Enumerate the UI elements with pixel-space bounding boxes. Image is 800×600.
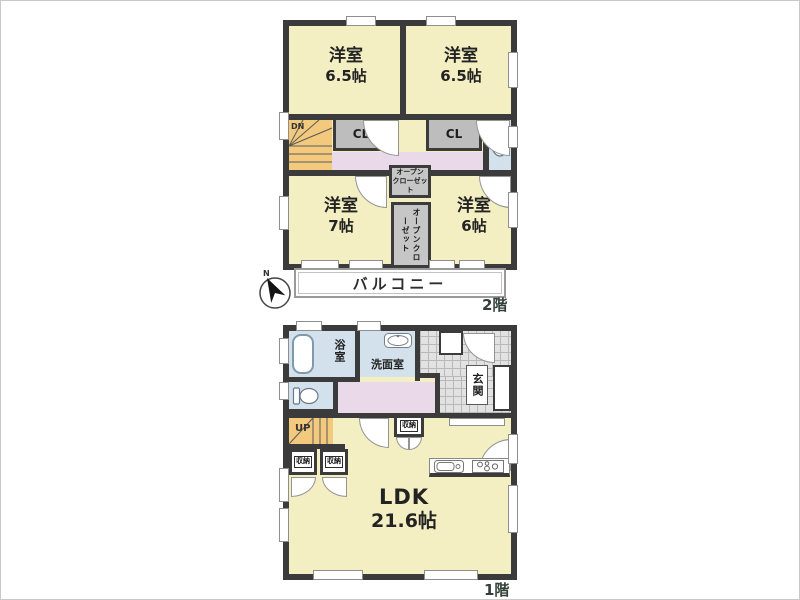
washroom-name: 洗面室 xyxy=(371,358,404,372)
sink-icon xyxy=(384,333,412,348)
closet-cl-right-label: CL xyxy=(446,127,462,141)
stairs-down-area: DN xyxy=(289,120,332,170)
bathtub-icon xyxy=(292,334,314,374)
storage-right: 収納 xyxy=(320,449,348,475)
floor1-plan: 浴室 洗面室 玄関 xyxy=(283,325,517,580)
washroom-label: 洗面室 xyxy=(360,357,415,373)
open-closet-lower: オープンクローゼット xyxy=(391,202,431,268)
ldk-label: LDK 21.6帖 xyxy=(344,481,464,537)
entrance-step xyxy=(449,418,505,426)
room-nw-size: 6.5帖 xyxy=(325,67,367,86)
kitchen-counter xyxy=(429,458,510,477)
window-icon xyxy=(279,468,289,502)
window-icon xyxy=(424,570,478,580)
room-sw-name: 洋室 xyxy=(324,196,358,217)
window-icon xyxy=(279,196,289,230)
window-icon xyxy=(508,192,518,228)
window-icon xyxy=(313,570,363,580)
floorplan-canvas: DN CL CL オープン クローゼット オープンクローゼット 洋室 6.5帖 xyxy=(0,0,800,600)
balcony-label: バルコニー xyxy=(353,273,448,294)
storage-left: 収納 xyxy=(289,449,317,475)
window-icon xyxy=(508,485,518,533)
stairs-up-label: UP xyxy=(295,423,310,434)
room-se-name: 洋室 xyxy=(457,196,491,217)
door-arc xyxy=(359,418,389,448)
compass-n-label: N xyxy=(263,269,270,278)
bath-label: 浴室 xyxy=(331,339,347,363)
ldk-size: 21.6帖 xyxy=(371,510,437,534)
storage-right-label: 収納 xyxy=(325,456,343,467)
entrance-closet xyxy=(439,331,463,355)
open-closet-lower-label: オープンクローゼット xyxy=(400,206,422,264)
window-icon xyxy=(426,16,456,26)
floor2-label: 2階 xyxy=(482,294,507,315)
room-se-size: 6帖 xyxy=(461,217,486,236)
window-icon xyxy=(279,112,289,140)
entrance-label: 玄関 xyxy=(469,373,485,397)
open-closet-upper: オープン クローゼット xyxy=(389,165,431,198)
window-icon xyxy=(346,16,376,26)
ldk-name: LDK xyxy=(379,484,429,510)
room-nw-label: 洋室 6.5帖 xyxy=(306,41,386,91)
wall xyxy=(400,26,406,120)
storage-mid: 収納 xyxy=(394,415,424,437)
window-icon xyxy=(508,52,518,88)
closet-cl-right: CL xyxy=(426,117,482,151)
compass-icon: N xyxy=(250,266,296,312)
window-icon xyxy=(508,434,518,464)
stairs-down-label: DN xyxy=(291,122,304,131)
window-icon xyxy=(279,508,289,542)
entrance-label-box: 玄関 xyxy=(466,365,488,405)
window-icon xyxy=(296,321,322,331)
room-sw-size: 7帖 xyxy=(328,217,353,236)
balcony: バルコニー xyxy=(294,268,506,298)
storage-left-label: 収納 xyxy=(294,456,312,467)
stove-icon xyxy=(472,460,504,473)
door-arc xyxy=(291,477,316,497)
window-icon xyxy=(279,338,289,364)
window-icon xyxy=(357,321,381,331)
storage-mid-label: 収納 xyxy=(400,420,418,431)
room-ne-label: 洋室 6.5帖 xyxy=(421,41,501,91)
room-ne-name: 洋室 xyxy=(444,46,478,67)
window-icon xyxy=(279,382,289,400)
room-ne-size: 6.5帖 xyxy=(440,67,482,86)
window-icon xyxy=(508,126,518,148)
floor1-label: 1階 xyxy=(484,579,509,600)
toilet-icon xyxy=(293,386,319,406)
wall xyxy=(435,378,440,413)
door-arc xyxy=(409,437,422,450)
entrance-closet xyxy=(493,365,511,411)
stairs-up-area: UP xyxy=(289,418,333,444)
door-arc xyxy=(396,437,409,450)
floor1-hallway xyxy=(338,382,435,413)
floor2-plan: DN CL CL オープン クローゼット オープンクローゼット 洋室 6.5帖 xyxy=(283,20,517,270)
open-closet-upper-label: オープン クローゼット xyxy=(392,168,428,194)
room-nw-name: 洋室 xyxy=(329,46,363,67)
kitchen-sink-icon xyxy=(434,460,464,473)
